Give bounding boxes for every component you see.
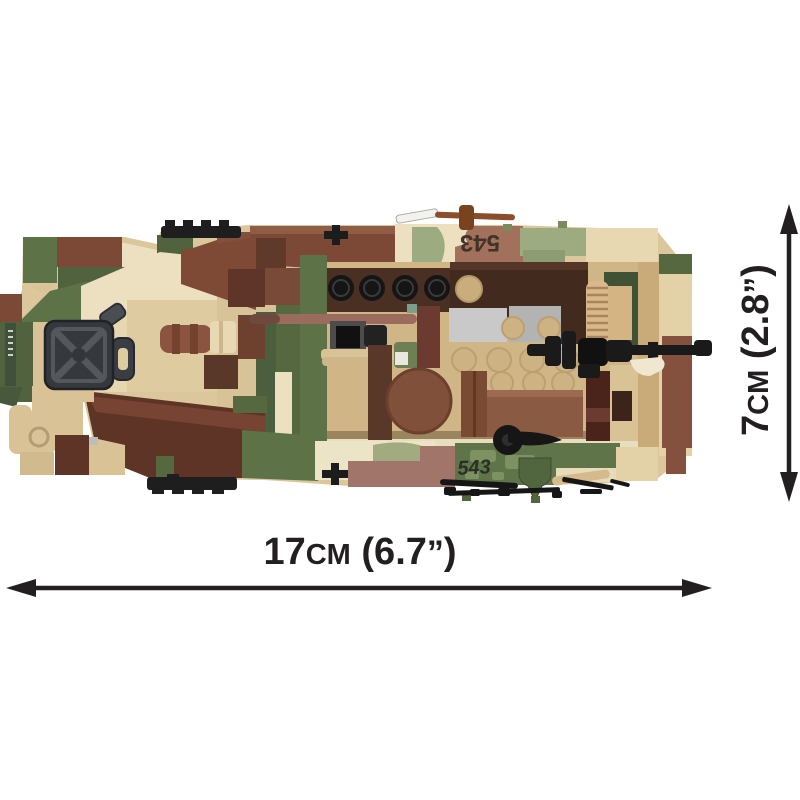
svg-text:543: 543 xyxy=(457,456,491,480)
svg-text:543: 543 xyxy=(460,229,500,256)
svg-text:17CM (6.7”): 17CM (6.7”) xyxy=(263,531,456,573)
